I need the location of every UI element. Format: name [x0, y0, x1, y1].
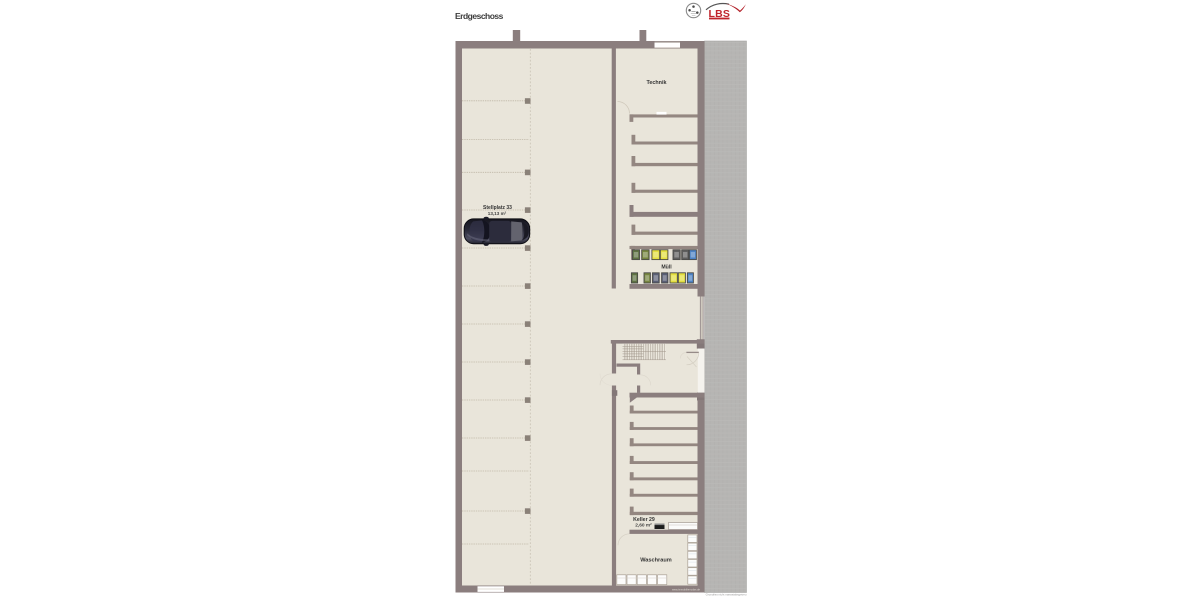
- svg-text:Keller 29: Keller 29: [633, 517, 655, 523]
- svg-text:Waschraum: Waschraum: [640, 558, 672, 564]
- svg-text:www.immobilien-plan.de: www.immobilien-plan.de: [672, 588, 701, 592]
- svg-text:2,60 m²: 2,60 m²: [635, 522, 652, 528]
- svg-text:Erdgeschoss: Erdgeschoss: [455, 11, 504, 21]
- svg-text:Müll: Müll: [661, 264, 672, 270]
- svg-text:Grundriss nicht massstabsgetre: Grundriss nicht massstabsgetreu: [706, 592, 747, 596]
- svg-text:13,13 m²: 13,13 m²: [488, 211, 507, 216]
- svg-text:Technik: Technik: [647, 80, 667, 86]
